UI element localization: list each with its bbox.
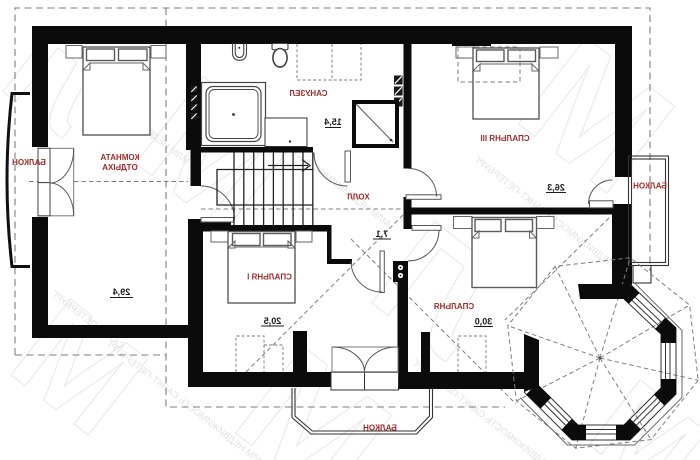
- svg-text:15,4: 15,4: [324, 117, 342, 127]
- svg-text:26,3: 26,3: [547, 183, 565, 193]
- svg-text:СПАЛЬНЯ I: СПАЛЬНЯ I: [247, 273, 292, 282]
- svg-text:30,0: 30,0: [475, 317, 493, 327]
- svg-text:20,5: 20,5: [264, 316, 282, 326]
- svg-text:7,1: 7,1: [376, 229, 389, 239]
- svg-text:КОМНАТА: КОМНАТА: [100, 153, 139, 162]
- svg-text:29,4: 29,4: [113, 287, 131, 297]
- svg-text:САНУЗЕЛ: САНУЗЕЛ: [289, 89, 327, 98]
- svg-text:БАЛКОН: БАЛКОН: [363, 424, 397, 433]
- svg-text:СПАЛЬНЯ: СПАЛЬНЯ: [434, 302, 475, 311]
- svg-text:СПАЛЬНЯ III: СПАЛЬНЯ III: [480, 134, 529, 143]
- svg-text:ХОЛЛ: ХОЛЛ: [347, 193, 370, 202]
- svg-text:БАЛКОН: БАЛКОН: [633, 182, 667, 191]
- svg-text:ОТДЫХА: ОТДЫХА: [102, 163, 138, 172]
- svg-text:БАЛКОН: БАЛКОН: [12, 158, 46, 167]
